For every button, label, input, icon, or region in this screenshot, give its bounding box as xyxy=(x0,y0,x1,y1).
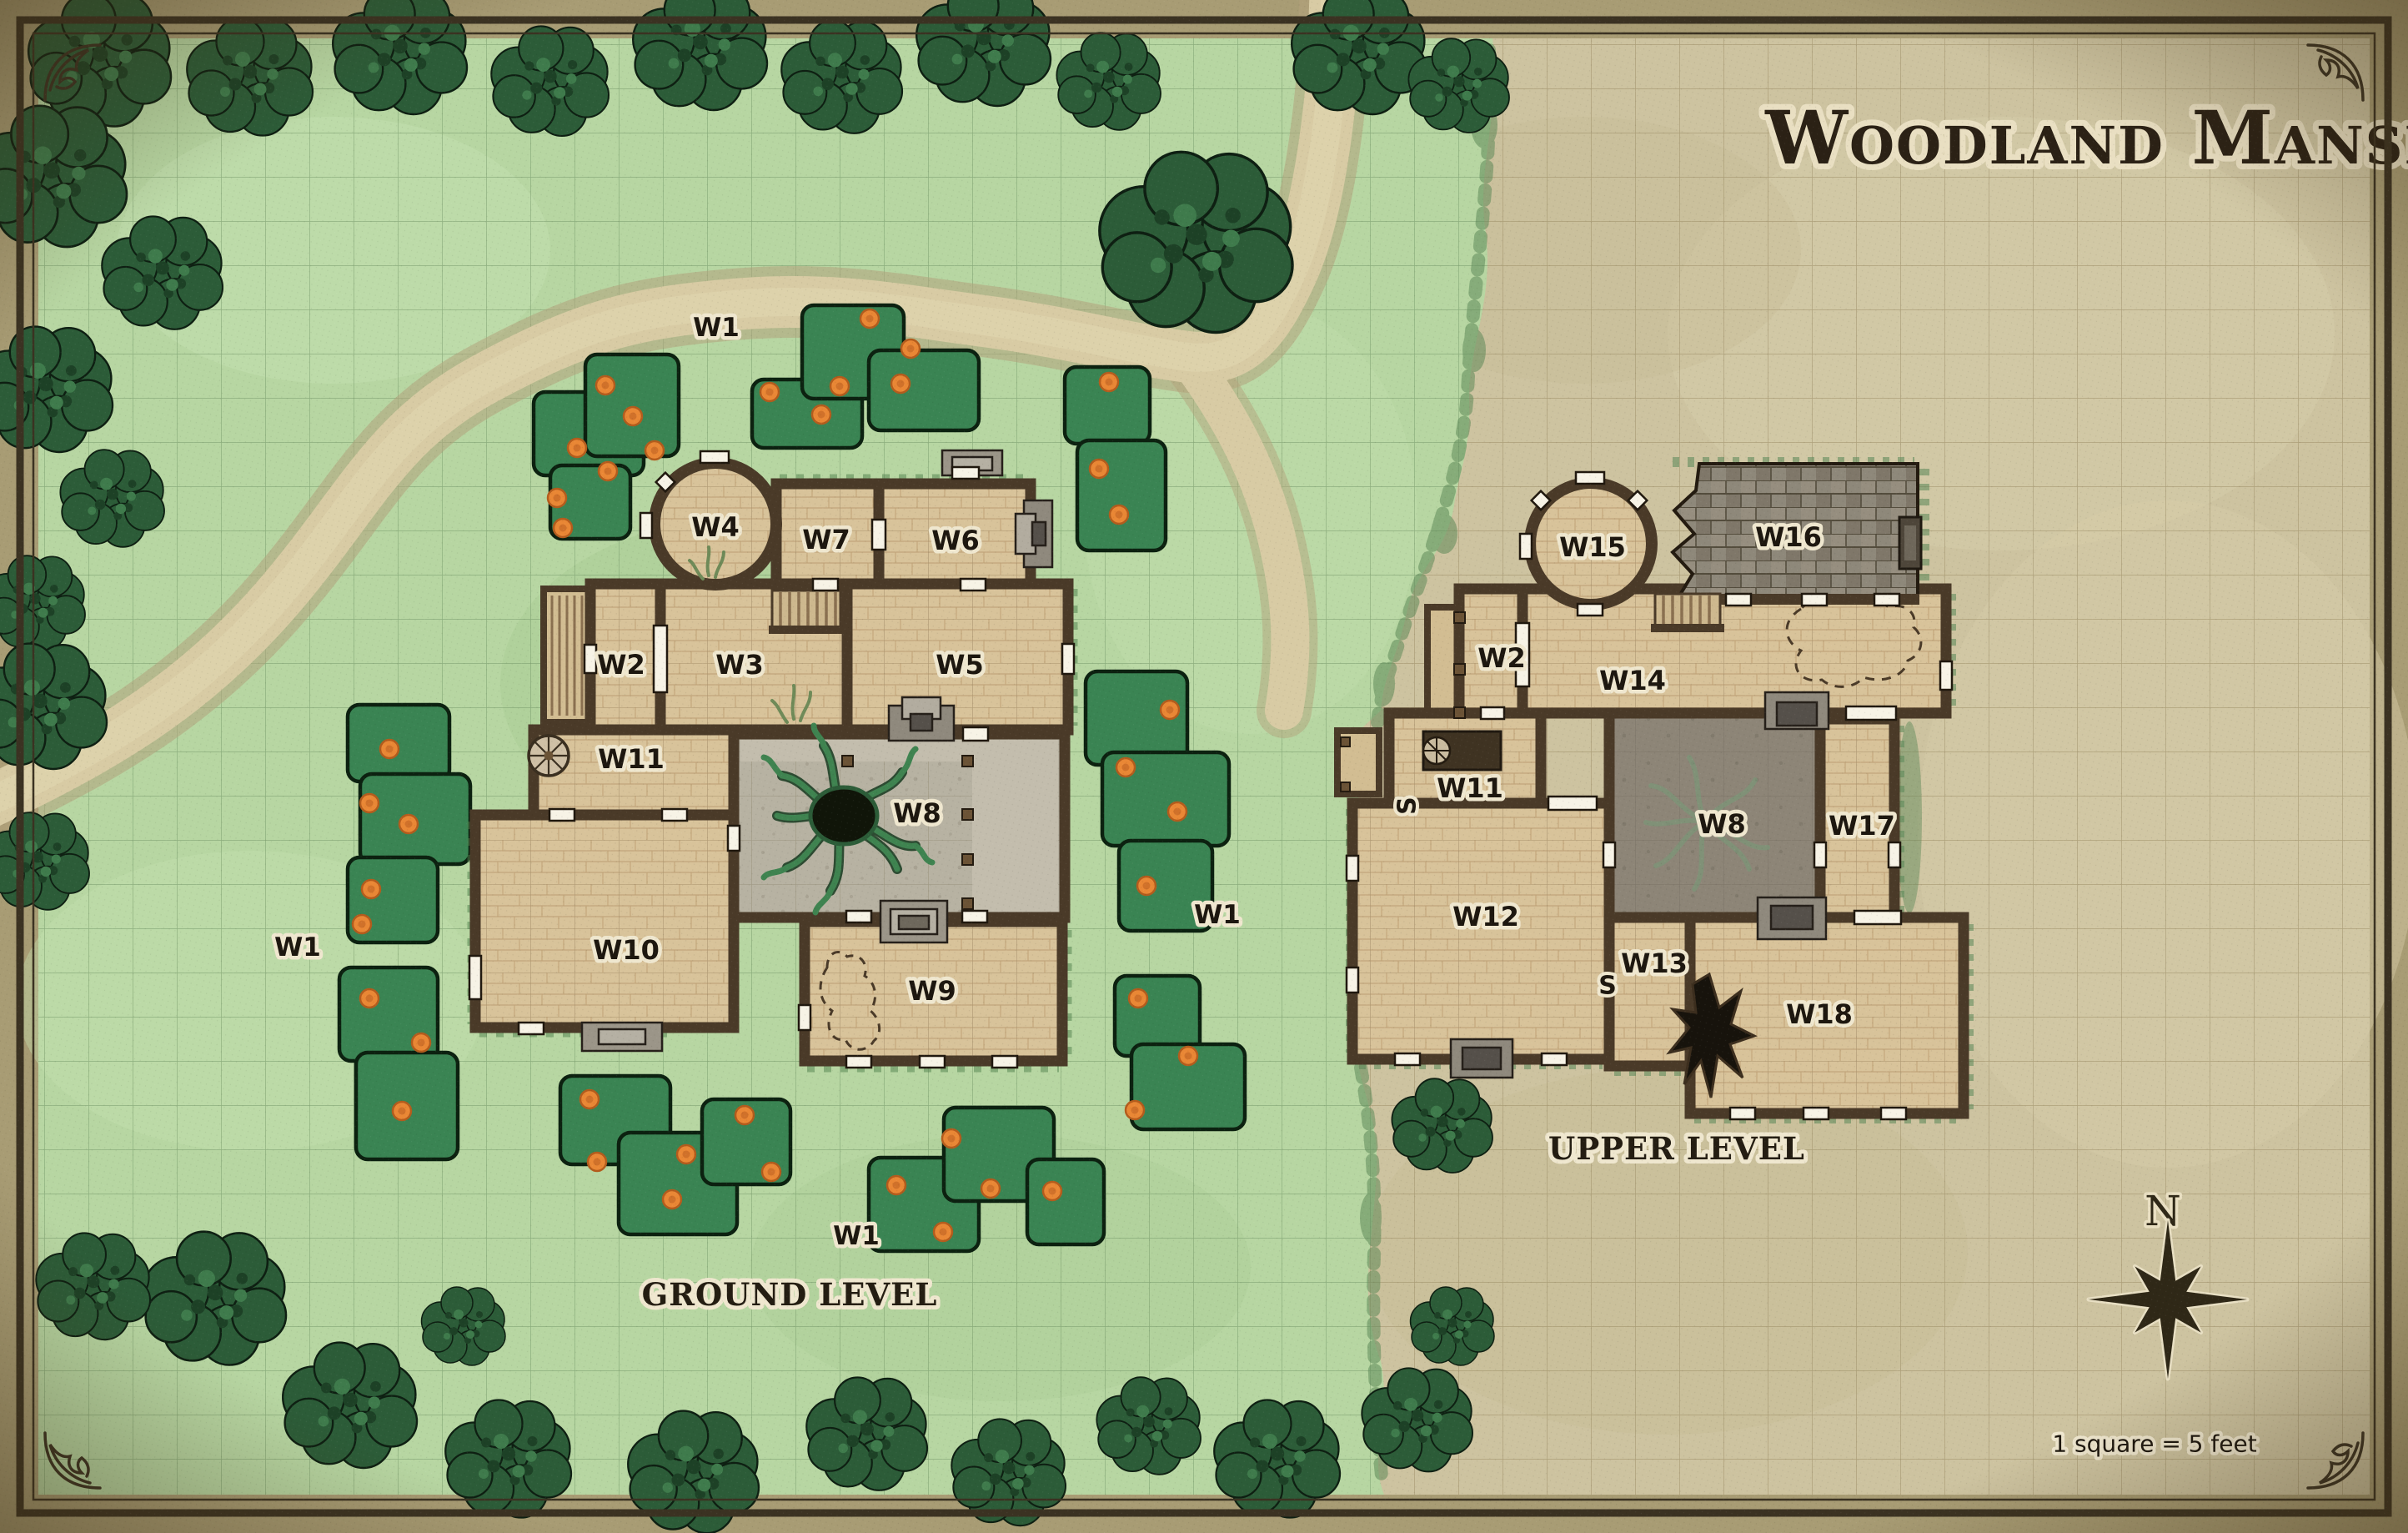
map-canvas: W4 W7 W6 W2 W3 W5 W11 W8 W10 W9 W15 W16 … xyxy=(0,0,2408,1533)
woodland-manse-map: W4 W7 W6 W2 W3 W5 W11 W8 W10 W9 W15 W16 … xyxy=(0,0,2408,1533)
vignette xyxy=(0,0,2408,1533)
